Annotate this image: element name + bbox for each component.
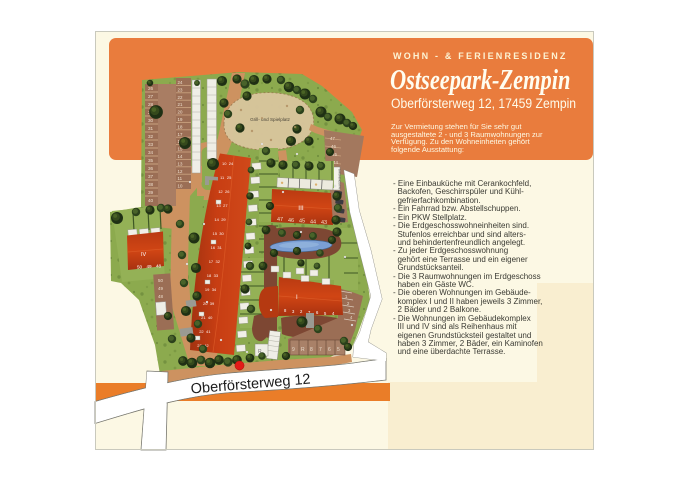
svg-text:8: 8 xyxy=(310,347,313,353)
svg-text:III: III xyxy=(298,205,304,212)
svg-text:40: 40 xyxy=(148,198,154,203)
svg-text:BRÜNINGSTR: BRÜNINGSTR xyxy=(338,169,342,190)
svg-text:Grill- und Spielplatz: Grill- und Spielplatz xyxy=(250,117,291,122)
svg-text:33: 33 xyxy=(214,273,219,278)
svg-text:19: 19 xyxy=(205,287,210,292)
svg-text:16: 16 xyxy=(211,245,216,250)
svg-text:49: 49 xyxy=(158,286,163,291)
svg-text:11: 11 xyxy=(178,176,183,181)
svg-text:18: 18 xyxy=(178,124,183,129)
svg-text:10: 10 xyxy=(222,161,227,166)
svg-text:17: 17 xyxy=(209,259,214,264)
svg-text:21: 21 xyxy=(178,102,183,107)
svg-text:23: 23 xyxy=(178,87,183,92)
svg-text:14: 14 xyxy=(178,154,183,159)
svg-text:22: 22 xyxy=(178,95,183,100)
svg-text:6: 6 xyxy=(328,347,331,353)
svg-text:38: 38 xyxy=(148,182,154,187)
svg-text:47: 47 xyxy=(277,217,283,223)
svg-text:37: 37 xyxy=(148,174,154,179)
svg-text:14: 14 xyxy=(214,217,219,222)
svg-text:39: 39 xyxy=(210,301,215,306)
svg-text:49: 49 xyxy=(147,264,153,269)
svg-text:40: 40 xyxy=(208,315,213,320)
svg-text:50: 50 xyxy=(137,265,143,270)
svg-text:17: 17 xyxy=(178,132,183,137)
svg-text:31: 31 xyxy=(148,126,154,131)
svg-text:15: 15 xyxy=(213,231,218,236)
svg-text:9: 9 xyxy=(292,347,295,353)
svg-text:27: 27 xyxy=(148,94,154,99)
svg-text:48: 48 xyxy=(156,264,162,269)
svg-text:46: 46 xyxy=(331,144,336,149)
svg-text:32: 32 xyxy=(216,259,221,264)
svg-text:25: 25 xyxy=(227,175,232,180)
svg-text:39: 39 xyxy=(148,190,154,195)
svg-text:13: 13 xyxy=(178,161,183,166)
svg-text:12: 12 xyxy=(178,169,183,174)
svg-text:41: 41 xyxy=(206,329,211,334)
svg-text:30: 30 xyxy=(219,231,224,236)
svg-text:20: 20 xyxy=(178,110,183,115)
svg-text:22: 22 xyxy=(199,329,204,334)
svg-text:48: 48 xyxy=(158,294,163,299)
svg-text:12: 12 xyxy=(218,189,223,194)
svg-text:IV: IV xyxy=(141,252,147,258)
svg-text:50: 50 xyxy=(158,278,163,283)
svg-text:34: 34 xyxy=(148,150,154,155)
svg-text:32: 32 xyxy=(148,134,154,139)
svg-text:34: 34 xyxy=(212,287,217,292)
svg-text:44: 44 xyxy=(310,219,316,225)
svg-text:19: 19 xyxy=(178,117,183,122)
svg-text:43: 43 xyxy=(321,220,327,226)
svg-text:45: 45 xyxy=(299,219,305,225)
svg-text:10: 10 xyxy=(178,184,183,189)
svg-text:27: 27 xyxy=(223,203,228,208)
svg-text:47: 47 xyxy=(330,136,335,141)
svg-text:29: 29 xyxy=(221,217,226,222)
svg-text:31: 31 xyxy=(217,245,222,250)
svg-text:R: R xyxy=(301,347,305,353)
svg-text:7: 7 xyxy=(319,347,322,353)
svg-text:24: 24 xyxy=(229,161,234,166)
svg-text:36: 36 xyxy=(148,166,154,171)
svg-text:18: 18 xyxy=(207,273,212,278)
svg-text:26: 26 xyxy=(148,86,154,91)
svg-text:46: 46 xyxy=(288,218,294,224)
svg-text:30: 30 xyxy=(148,118,154,123)
svg-text:24: 24 xyxy=(178,80,183,85)
svg-text:5: 5 xyxy=(337,347,340,353)
svg-text:35: 35 xyxy=(148,158,154,163)
svg-text:33: 33 xyxy=(148,142,154,147)
svg-text:26: 26 xyxy=(225,189,230,194)
